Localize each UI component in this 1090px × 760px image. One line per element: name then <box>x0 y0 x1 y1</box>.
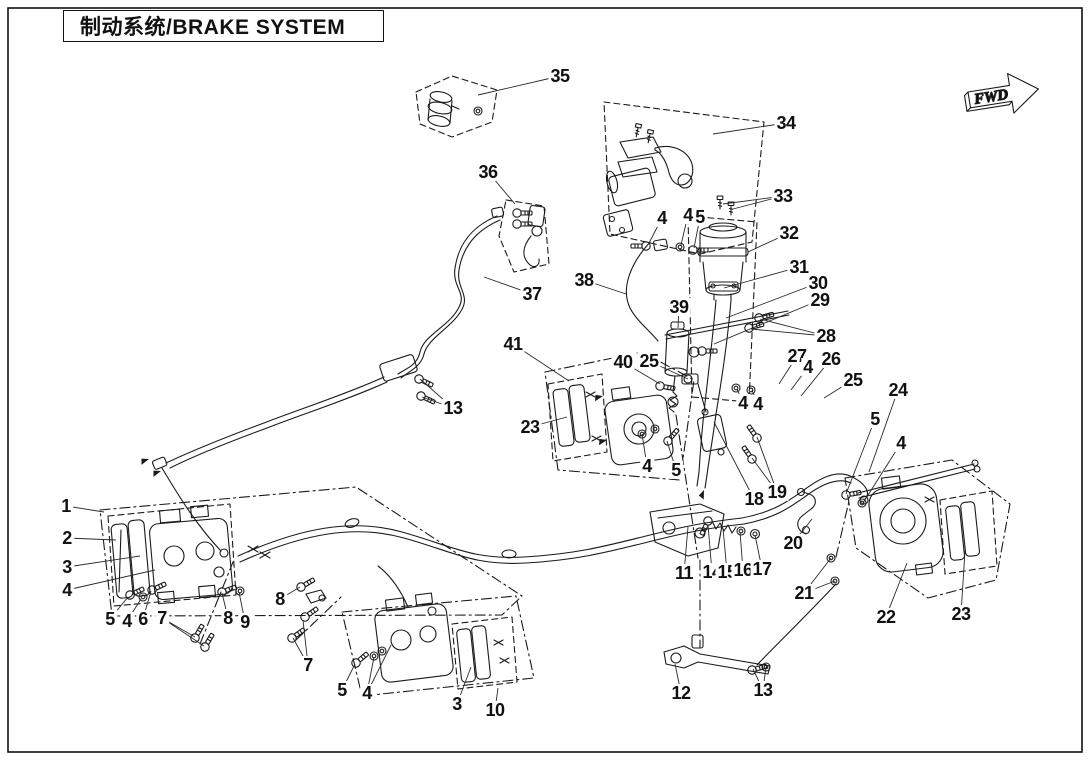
rear-right-caliper-group <box>757 460 1010 665</box>
part-callout-5: 5 <box>103 610 117 628</box>
part-callout-23: 23 <box>518 418 541 436</box>
part-callout-17: 17 <box>750 560 773 578</box>
part-callout-36: 36 <box>476 163 499 181</box>
part-callout-8: 8 <box>273 590 287 608</box>
fwd-arrow: FWD <box>962 69 1041 120</box>
part-callout-7: 7 <box>301 656 315 674</box>
part-callout-4: 4 <box>120 612 134 630</box>
part-callout-3: 3 <box>60 558 74 576</box>
part-callout-20: 20 <box>781 534 804 552</box>
part-callout-4: 4 <box>894 434 908 452</box>
part-callout-3: 3 <box>450 695 464 713</box>
part-callout-25: 25 <box>637 352 660 370</box>
part-callout-26: 26 <box>819 350 842 368</box>
front-brake-hose-group <box>140 216 500 557</box>
part-callout-11: 11 <box>673 564 695 582</box>
part-callout-32: 32 <box>777 224 800 242</box>
part-callout-4: 4 <box>801 358 815 376</box>
part-callout-21: 21 <box>792 584 815 602</box>
part-callout-6: 6 <box>136 610 150 628</box>
part-callout-5: 5 <box>693 208 707 226</box>
part-callout-13: 13 <box>751 681 774 699</box>
part-callout-4: 4 <box>751 395 765 413</box>
part-callout-1: 1 <box>59 497 73 515</box>
part-callout-5: 5 <box>335 681 349 699</box>
part-callout-24: 24 <box>886 381 909 399</box>
title-block: 制动系统/BRAKE SYSTEM <box>63 10 384 42</box>
part-callout-35: 35 <box>548 67 571 85</box>
part-callout-34: 34 <box>774 114 797 132</box>
part-callout-19: 19 <box>765 483 788 501</box>
part-callout-4: 4 <box>655 209 669 227</box>
part-callout-37: 37 <box>520 285 543 303</box>
callout-leader-lines <box>66 76 965 710</box>
part-callout-9: 9 <box>238 613 252 631</box>
part-callout-2: 2 <box>60 529 74 547</box>
part-callout-33: 33 <box>771 187 794 205</box>
part-callout-41: 41 <box>501 335 524 353</box>
part-callout-13: 13 <box>441 399 464 417</box>
part-callout-23: 23 <box>949 605 972 623</box>
page-border <box>8 8 1082 752</box>
part-callout-12: 12 <box>669 684 692 702</box>
part-callout-4: 4 <box>736 394 750 412</box>
part-callout-22: 22 <box>874 608 897 626</box>
part-36-group <box>491 200 549 272</box>
part-callout-39: 39 <box>667 298 690 316</box>
pedal-valve-group <box>650 374 770 675</box>
part-callout-4: 4 <box>360 684 374 702</box>
reservoir-group <box>688 196 757 475</box>
part-callout-5: 5 <box>868 410 882 428</box>
front-right-caliper-group <box>286 566 534 696</box>
part-callout-4: 4 <box>60 581 74 599</box>
part-callout-8: 8 <box>221 609 235 627</box>
part-35-group <box>416 76 497 137</box>
page-title: 制动系统/BRAKE SYSTEM <box>80 11 345 41</box>
part-callout-18: 18 <box>742 490 765 508</box>
part-callout-7: 7 <box>155 609 169 627</box>
part-callout-29: 29 <box>808 291 831 309</box>
brake-lever-assembly-group <box>603 102 764 254</box>
part-callout-28: 28 <box>814 327 837 345</box>
part-callout-38: 38 <box>572 271 595 289</box>
part-callout-10: 10 <box>483 701 506 719</box>
part-callout-40: 40 <box>611 353 634 371</box>
part-callout-25: 25 <box>841 371 864 389</box>
part-callout-4: 4 <box>640 457 654 475</box>
part-callout-5: 5 <box>669 461 683 479</box>
parts-diagram-page: FWD <box>0 0 1090 760</box>
brake-system-diagram: FWD <box>0 0 1090 760</box>
